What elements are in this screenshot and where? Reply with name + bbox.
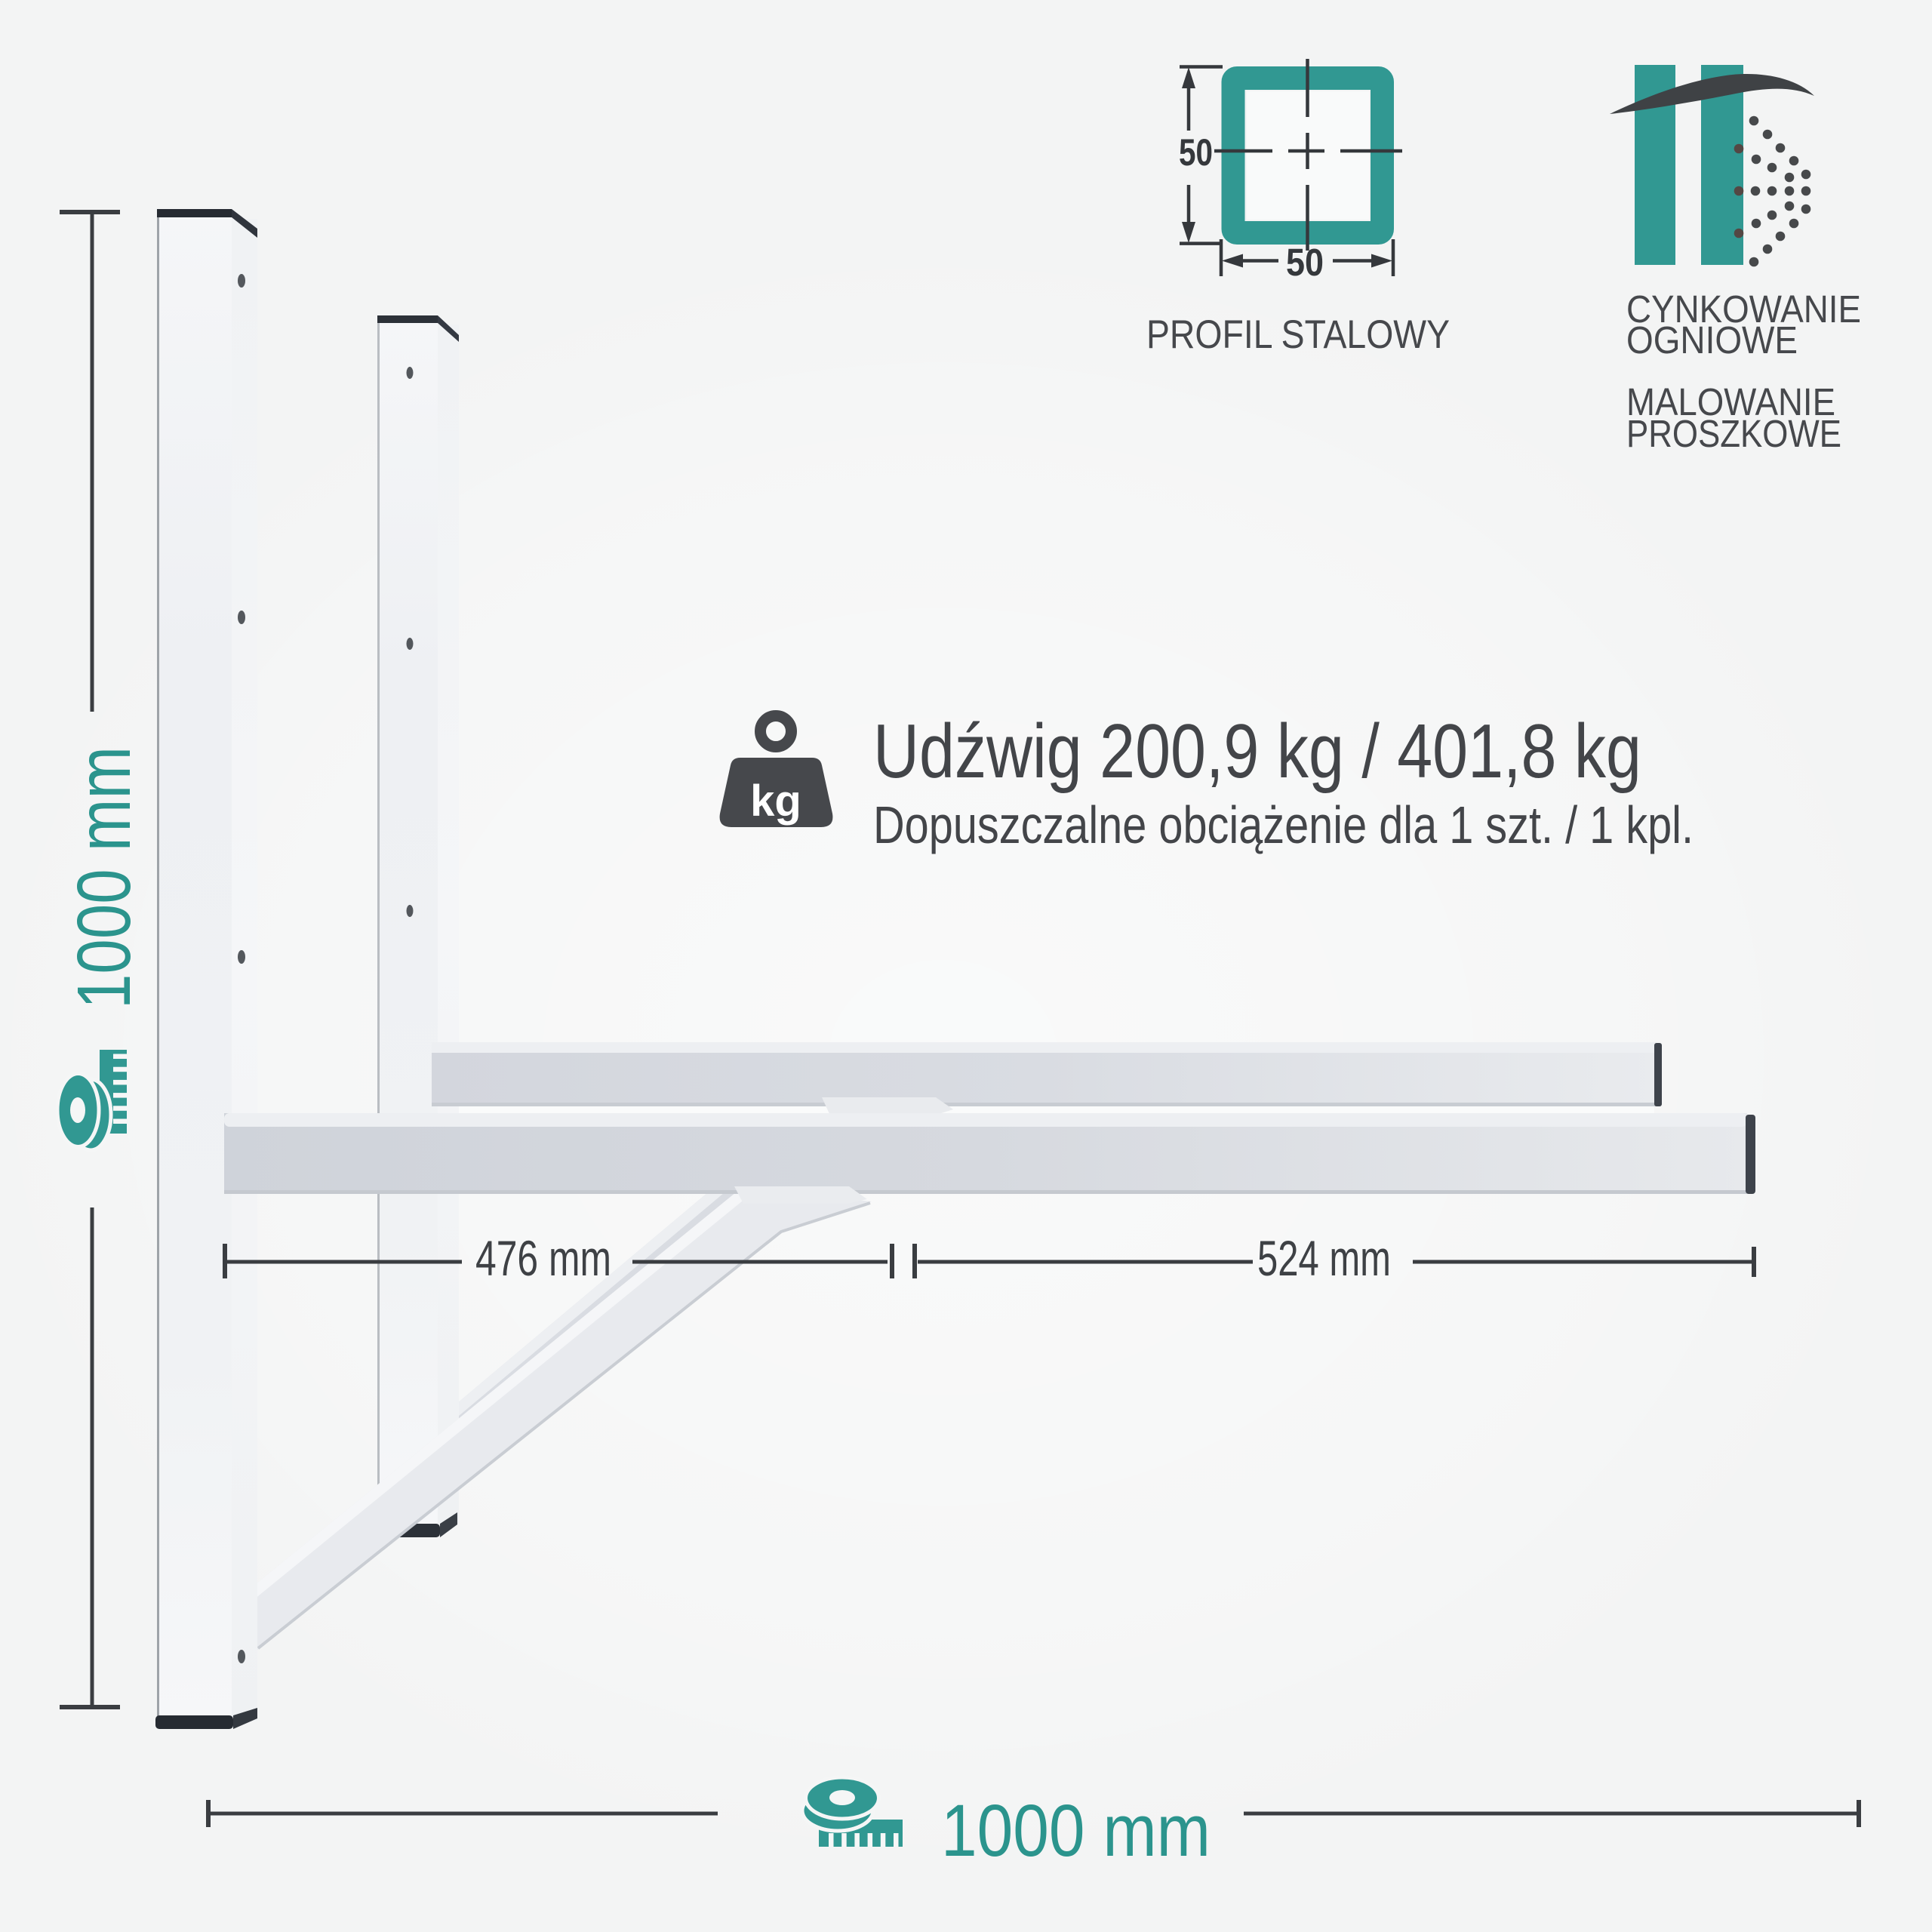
svg-text:50: 50 xyxy=(1179,131,1213,174)
svg-text:1000 mm: 1000 mm xyxy=(62,746,146,1009)
svg-text:PROFIL STALOWY: PROFIL STALOWY xyxy=(1146,312,1450,357)
svg-text:Dopuszczalne obciążenie dla 1: Dopuszczalne obciążenie dla 1 szt. / 1 k… xyxy=(873,795,1694,854)
svg-text:kg: kg xyxy=(750,777,801,826)
svg-text:476 mm: 476 mm xyxy=(475,1230,611,1286)
svg-text:524 mm: 524 mm xyxy=(1257,1230,1391,1286)
svg-text:PROSZKOWE: PROSZKOWE xyxy=(1626,412,1841,455)
svg-text:1000 mm: 1000 mm xyxy=(941,1789,1211,1872)
svg-text:Udźwig 200,9 kg / 401,8 kg: Udźwig 200,9 kg / 401,8 kg xyxy=(873,709,1641,794)
svg-text:50: 50 xyxy=(1286,241,1324,284)
svg-text:OGNIOWE: OGNIOWE xyxy=(1626,318,1798,361)
